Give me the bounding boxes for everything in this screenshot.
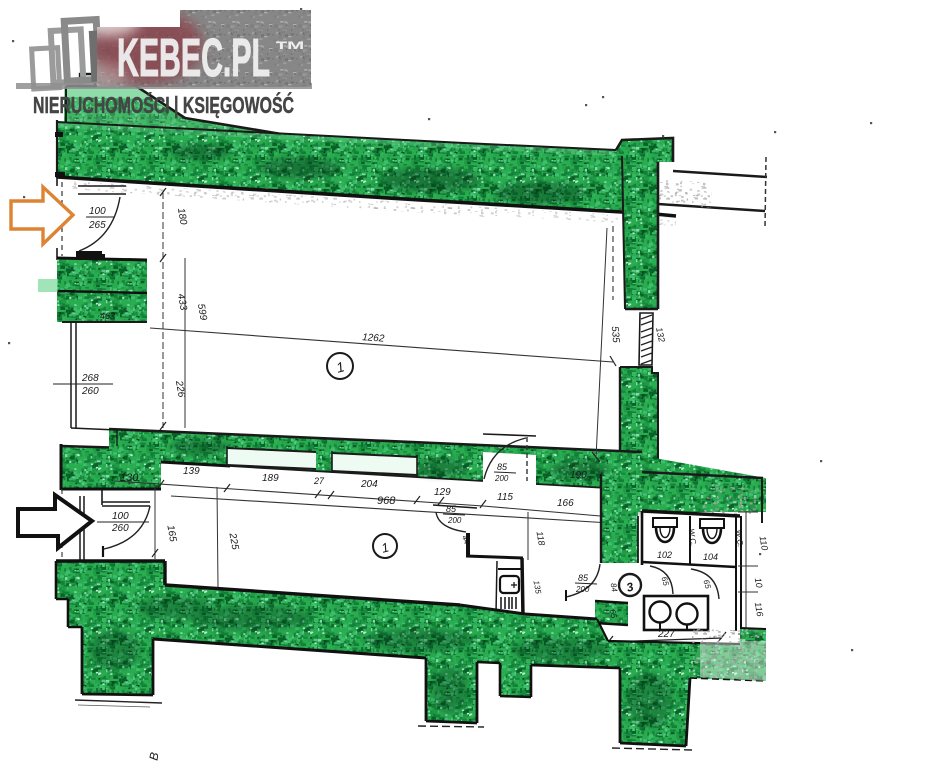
svg-text:KEBEC.PL: KEBEC.PL	[117, 28, 270, 88]
svg-text:1262: 1262	[362, 332, 385, 345]
svg-text:™: ™	[274, 37, 307, 64]
svg-text:260: 260	[81, 386, 99, 397]
svg-text:204: 204	[360, 479, 378, 490]
svg-text:200: 200	[575, 585, 590, 594]
svg-text:463: 463	[100, 311, 115, 321]
svg-text:104: 104	[703, 552, 718, 562]
svg-text:265: 265	[88, 220, 106, 231]
svg-text:27: 27	[313, 476, 325, 486]
svg-text:85: 85	[578, 573, 589, 583]
svg-text:166: 166	[557, 498, 574, 509]
svg-text:85: 85	[497, 462, 508, 472]
svg-text:268: 268	[81, 373, 99, 384]
svg-text:200: 200	[447, 516, 462, 525]
svg-text:190: 190	[570, 470, 587, 481]
svg-text:139: 139	[183, 466, 200, 477]
svg-text:189: 189	[262, 473, 279, 484]
svg-text:115: 115	[497, 492, 513, 503]
svg-text:85: 85	[446, 504, 457, 514]
svg-text:NIERUCHOMOŚCI | KSIĘGOWOŚĆ: NIERUCHOMOŚCI | KSIĘGOWOŚĆ	[33, 91, 294, 118]
svg-text:100: 100	[112, 511, 129, 522]
svg-text:102: 102	[657, 550, 672, 560]
svg-text:535: 535	[609, 326, 621, 344]
svg-text:10: 10	[753, 577, 765, 589]
svg-text:100: 100	[89, 206, 106, 217]
svg-text:129: 129	[434, 487, 451, 498]
svg-text:260: 260	[111, 523, 129, 534]
svg-text:227: 227	[657, 629, 675, 640]
svg-text:968: 968	[377, 495, 396, 507]
svg-text:200: 200	[494, 474, 509, 483]
